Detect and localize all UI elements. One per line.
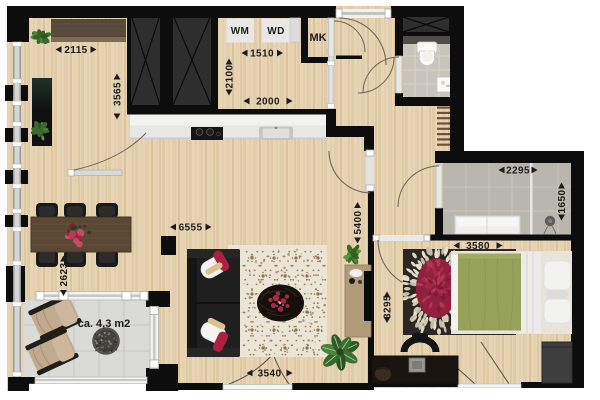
- svg-text:2115: 2115: [64, 45, 87, 56]
- svg-text:5400: 5400: [353, 211, 364, 235]
- svg-text:2000: 2000: [256, 97, 280, 108]
- svg-text:2100: 2100: [225, 65, 236, 89]
- svg-text:ca. 4,3 m2: ca. 4,3 m2: [78, 318, 131, 330]
- svg-text:1650: 1650: [557, 190, 568, 214]
- svg-text:WM: WM: [231, 26, 250, 37]
- svg-text:2295: 2295: [506, 166, 530, 177]
- svg-text:6555: 6555: [179, 223, 203, 234]
- svg-text:2623: 2623: [59, 263, 70, 287]
- svg-text:MK: MK: [309, 32, 326, 44]
- svg-text:3580: 3580: [466, 241, 490, 252]
- svg-text:3565: 3565: [113, 82, 124, 106]
- svg-text:WD: WD: [267, 26, 284, 37]
- svg-text:1510: 1510: [250, 49, 274, 60]
- svg-text:3295: 3295: [383, 295, 394, 319]
- svg-text:3540: 3540: [258, 369, 282, 380]
